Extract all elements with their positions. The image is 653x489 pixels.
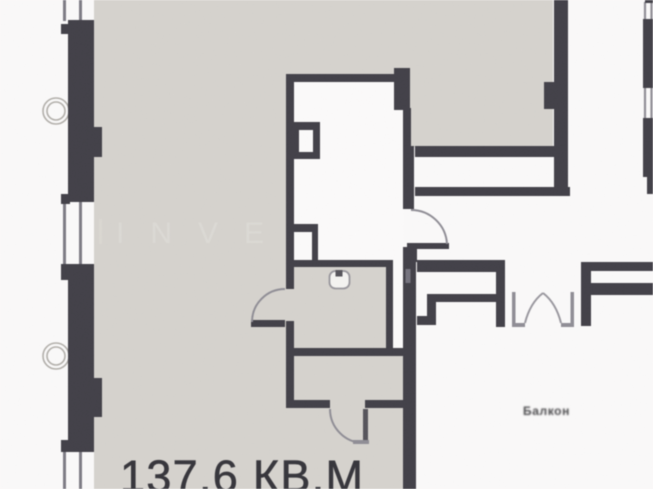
svg-text:137.6 КВ.М: 137.6 КВ.М (120, 451, 364, 489)
svg-text:INVE: INVE (116, 217, 290, 250)
svg-text:Балкон: Балкон (523, 404, 570, 418)
